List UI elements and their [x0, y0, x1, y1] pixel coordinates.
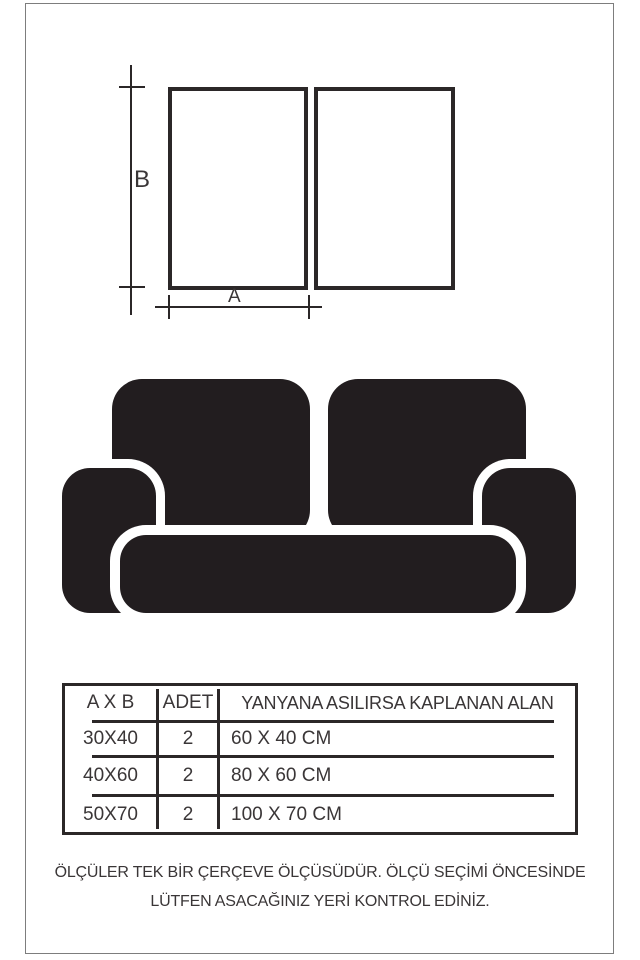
table-cell: 60 X 40 CM: [220, 723, 575, 755]
table-cell: 40X60: [65, 758, 156, 794]
frame-outline-left: [168, 87, 308, 290]
size-table: A X B ADET YANYANA ASILIRSA KAPLANAN ALA…: [62, 683, 578, 835]
footer-note-line1: ÖLÇÜLER TEK BİR ÇERÇEVE ÖLÇÜSÜDÜR. ÖLÇÜ …: [25, 858, 615, 887]
table-row: 30X40 2 60 X 40 CM: [65, 723, 575, 755]
table-row: 50X70 2 100 X 70 CM: [65, 797, 575, 832]
footer-note: ÖLÇÜLER TEK BİR ÇERÇEVE ÖLÇÜSÜDÜR. ÖLÇÜ …: [25, 858, 615, 916]
table-cell: 80 X 60 CM: [220, 758, 575, 794]
dimension-tick-b-top: [119, 86, 145, 88]
table-cell: 100 X 70 CM: [220, 797, 575, 832]
frame-outline-right: [314, 87, 455, 290]
sofa-seat: [120, 535, 516, 613]
table-header-alan: YANYANA ASILIRSA KAPLANAN ALAN: [220, 686, 575, 720]
table-cell: 30X40: [65, 723, 156, 755]
table-row: 40X60 2 80 X 60 CM: [65, 758, 575, 794]
dimension-label-b: B: [134, 168, 150, 192]
dimension-tick-b-bottom: [119, 286, 145, 288]
dimension-tick-a-left: [168, 295, 170, 319]
sofa-silhouette-icon: [62, 378, 576, 613]
dimension-tick-a-right: [308, 295, 310, 319]
table-header-row: A X B ADET YANYANA ASILIRSA KAPLANAN ALA…: [65, 686, 575, 720]
table-header-axb: A X B: [65, 686, 156, 720]
table-cell: 2: [159, 758, 217, 794]
table-cell: 50X70: [65, 797, 156, 832]
table-header-adet: ADET: [159, 686, 217, 720]
table-cell: 2: [159, 797, 217, 832]
table-cell: 2: [159, 723, 217, 755]
dimension-label-a: A: [228, 287, 241, 306]
footer-note-line2: LÜTFEN ASACAĞINIZ YERİ KONTROL EDİNİZ.: [25, 887, 615, 916]
dimension-line-b: [130, 65, 132, 315]
